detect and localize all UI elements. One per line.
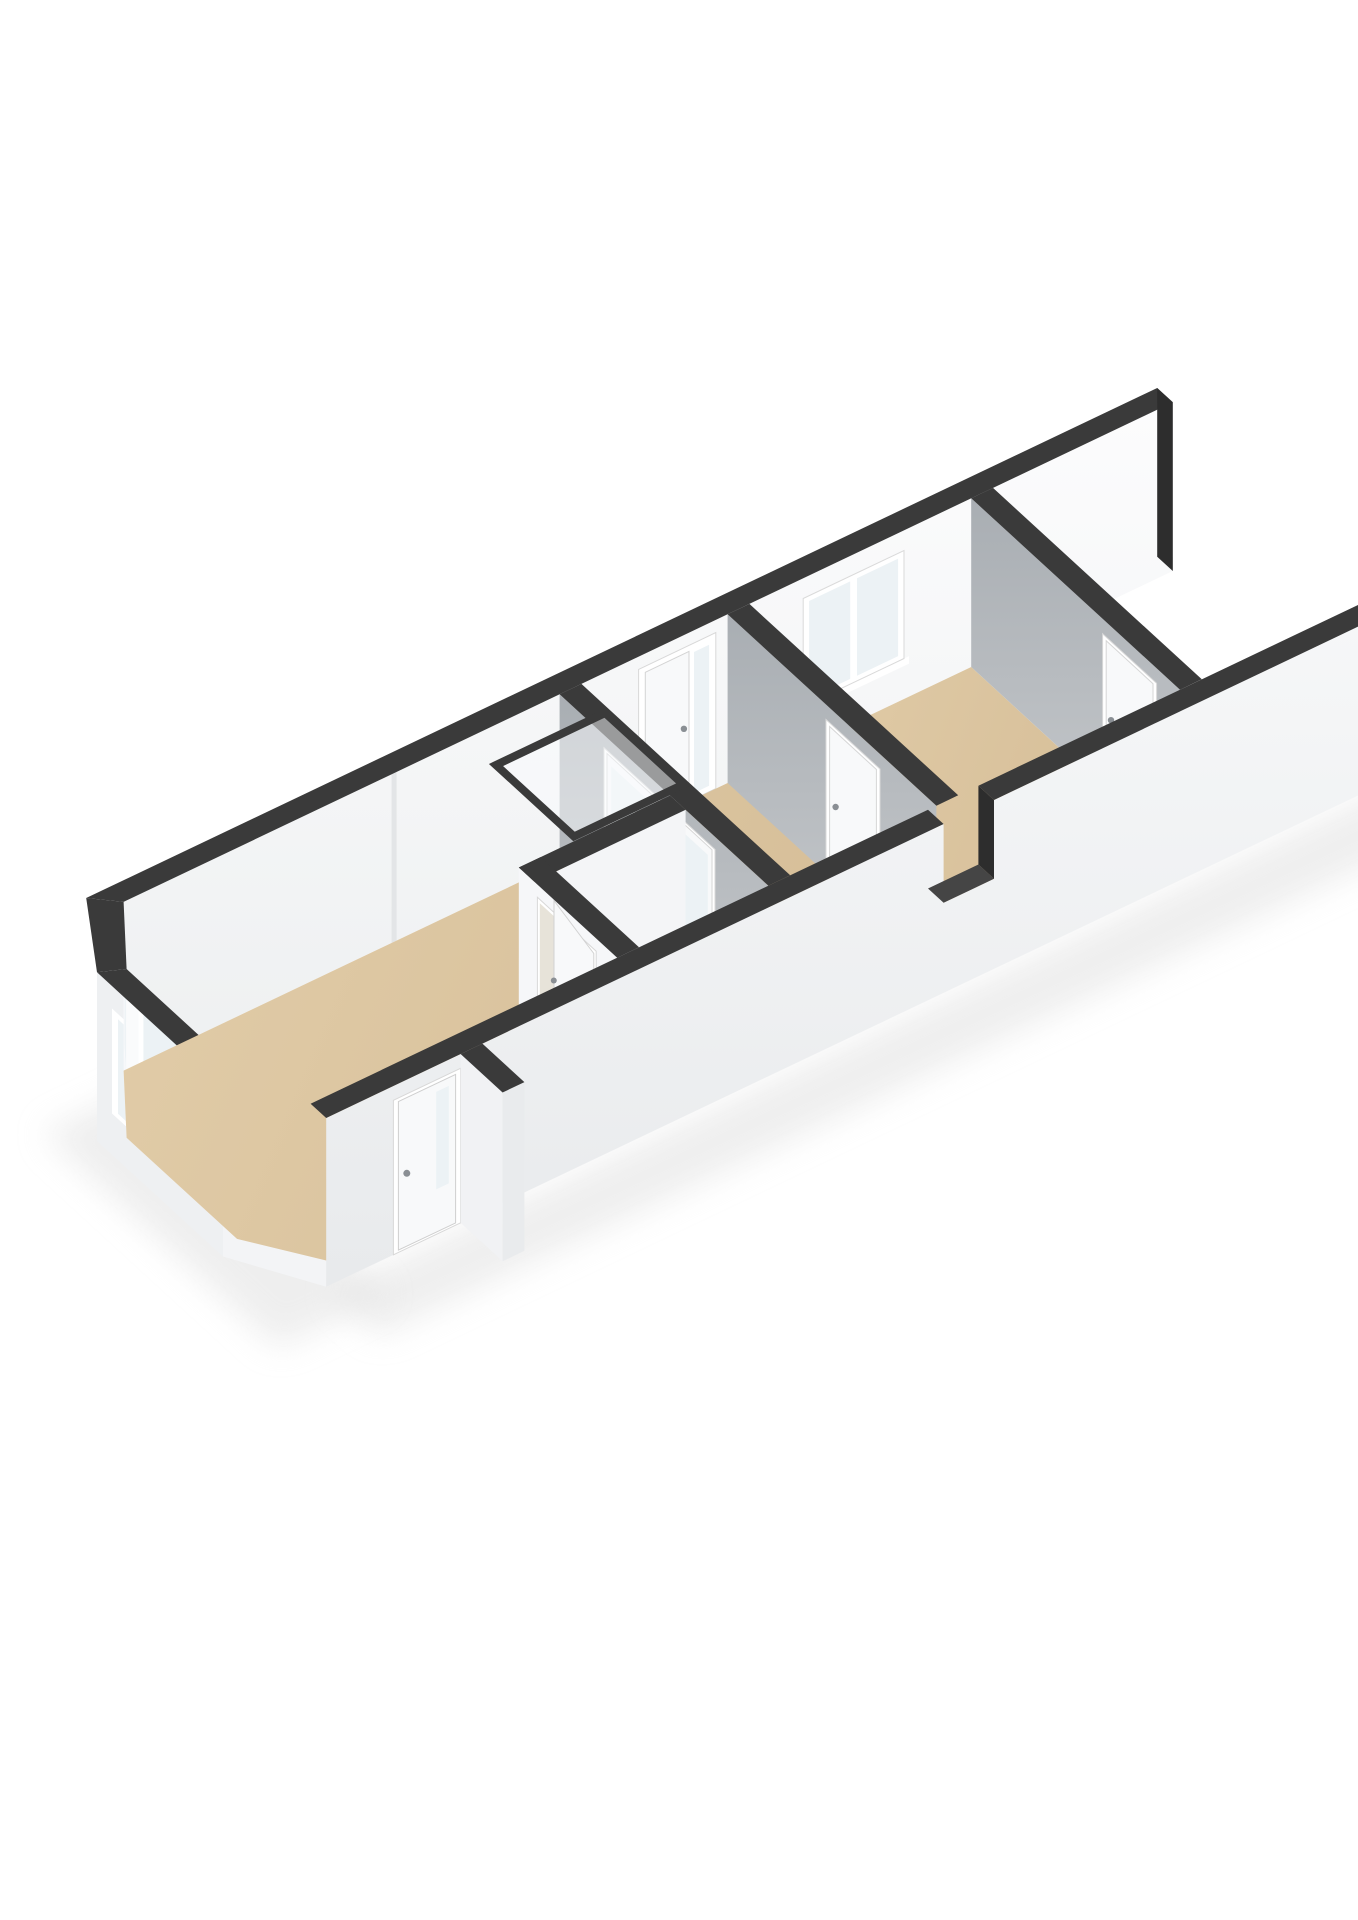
- entrance-door-handle: [403, 1170, 410, 1177]
- back-wall-end-cap: [1157, 388, 1173, 571]
- bay-chamfer-back-top: [86, 898, 126, 972]
- bedroom-window-glass-right: [857, 559, 898, 676]
- floorplan-svg: [0, 0, 1358, 1920]
- hall-entry-door-handle: [681, 726, 687, 732]
- floorplan-figure: [0, 0, 1358, 1920]
- entrance-door-glass: [436, 1086, 449, 1190]
- hall-entry-door-sidelight: [694, 645, 709, 793]
- page: [0, 0, 1358, 1920]
- back-wall-seam: [392, 772, 397, 943]
- closet-door-handle: [551, 978, 557, 984]
- hall-door-handle: [832, 804, 838, 810]
- porch-wall-end-face: [503, 1082, 525, 1261]
- front-wall-notch-cap: [978, 786, 994, 879]
